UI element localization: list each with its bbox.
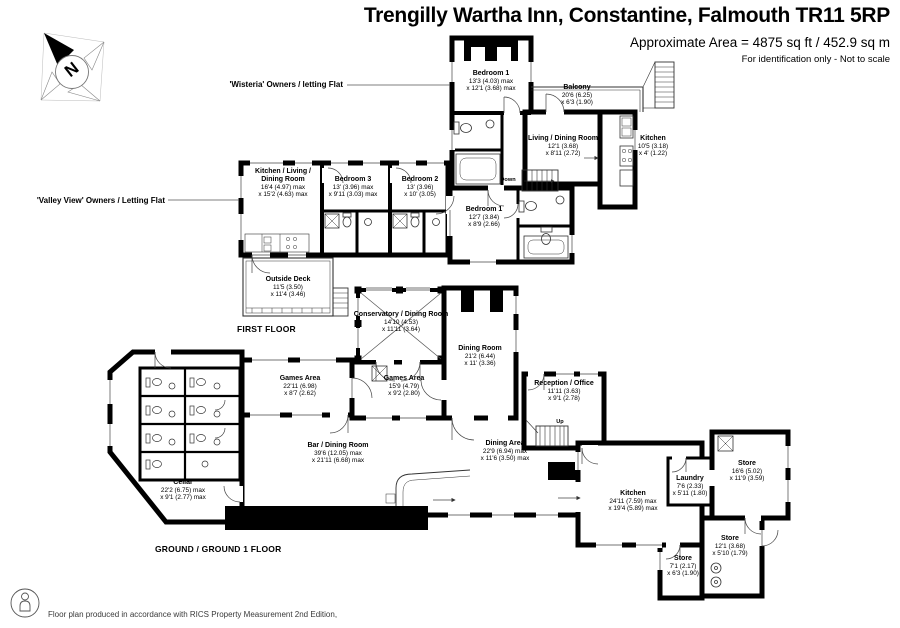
room-label-reception-office: Reception / Office 11'11 (3.63) x 9'1 (2…: [534, 380, 594, 403]
room-label-laundry: Laundry 7'6 (2.33) x 5'11 (1.80): [673, 475, 708, 498]
footer-line1: Floor plan produced in accordance with R…: [48, 610, 408, 621]
first-floor-label: FIRST FLOOR: [237, 324, 296, 334]
room-label-outside-deck: Outside Deck 11'5 (3.50) x 11'4 (3.46): [266, 276, 311, 299]
annotation-wisteria: 'Wisteria' Owners / letting Flat: [229, 80, 343, 89]
disclaimer: For identification only - Not to scale: [364, 54, 890, 65]
room-label-bedroom1-valley: Bedroom 1 12'7 (3.84) x 8'9 (2.66): [466, 206, 503, 229]
room-label-bedroom2: Bedroom 2 13' (3.96) x 10' (3.05): [402, 176, 439, 199]
header: Trengilly Wartha Inn, Constantine, Falmo…: [364, 4, 890, 65]
room-label-conservatory: Conservatory / Dining Room 14'10 (4.53) …: [354, 311, 449, 334]
room-label-store-2: Store 12'1 (3.68) x 5'10 (1.79): [712, 535, 747, 558]
room-label-games-area-right: Games Area 15'9 (4.79) x 9'2 (2.80): [384, 375, 425, 398]
room-label-dining-area: Dining Area 22'9 (6.94) max x 11'6 (3.50…: [481, 440, 530, 463]
room-label-bar-dining: Bar / Dining Room 39'6 (12.05) max x 21'…: [307, 442, 368, 465]
room-label-bedroom1-wisteria: Bedroom 1 13'3 (4.03) max x 12'1 (3.68) …: [466, 70, 515, 93]
room-label-kitchen-ground: Kitchen 24'11 (7.59) max x 19'4 (5.89) m…: [608, 490, 657, 513]
room-label-games-area-left: Games Area 22'11 (6.98) x 8'7 (2.62): [280, 375, 321, 398]
footer: Floor plan produced in accordance with R…: [48, 589, 408, 628]
room-label-balcony: Balcony 20'6 (6.25) x 6'3 (1.90): [561, 84, 593, 107]
annotation-valley-view: 'Valley View' Owners / Letting Flat: [37, 196, 165, 205]
room-label-dining-room: Dining Room 21'2 (6.44) x 11' (3.36): [458, 345, 502, 368]
room-label-kitchen-wisteria: Kitchen 10'5 (3.18) x 4' (1.22): [638, 135, 668, 158]
room-label-store-3: Store 7'1 (2.17) x 6'3 (1.90): [667, 555, 699, 578]
ground-floor-label: GROUND / GROUND 1 FLOOR: [155, 544, 281, 554]
floorplan-page: Trengilly Wartha Inn, Constantine, Falmo…: [0, 0, 900, 628]
approximate-area: Approximate Area = 4875 sq ft / 452.9 sq…: [364, 35, 890, 50]
stairs-up-label: Up: [556, 419, 563, 425]
room-label-kitchen-living-dining: Kitchen / Living / Dining Room 16'4 (4.9…: [251, 168, 315, 199]
room-label-cellar: Cellar 22'2 (6.75) max x 9'1 (2.77) max: [160, 479, 206, 502]
stairs-down-label: Down: [500, 177, 515, 183]
room-label-living-dining: Living / Dining Room 12'1 (3.68) x 8'11 …: [528, 135, 598, 158]
room-label-store-1: Store 16'6 (5.02) x 11'9 (3.59): [730, 460, 765, 483]
floorplan-drawing: [0, 0, 900, 628]
page-title: Trengilly Wartha Inn, Constantine, Falmo…: [364, 4, 890, 28]
room-label-bedroom3: Bedroom 3 13' (3.96) max x 9'11 (3.03) m…: [329, 176, 378, 199]
